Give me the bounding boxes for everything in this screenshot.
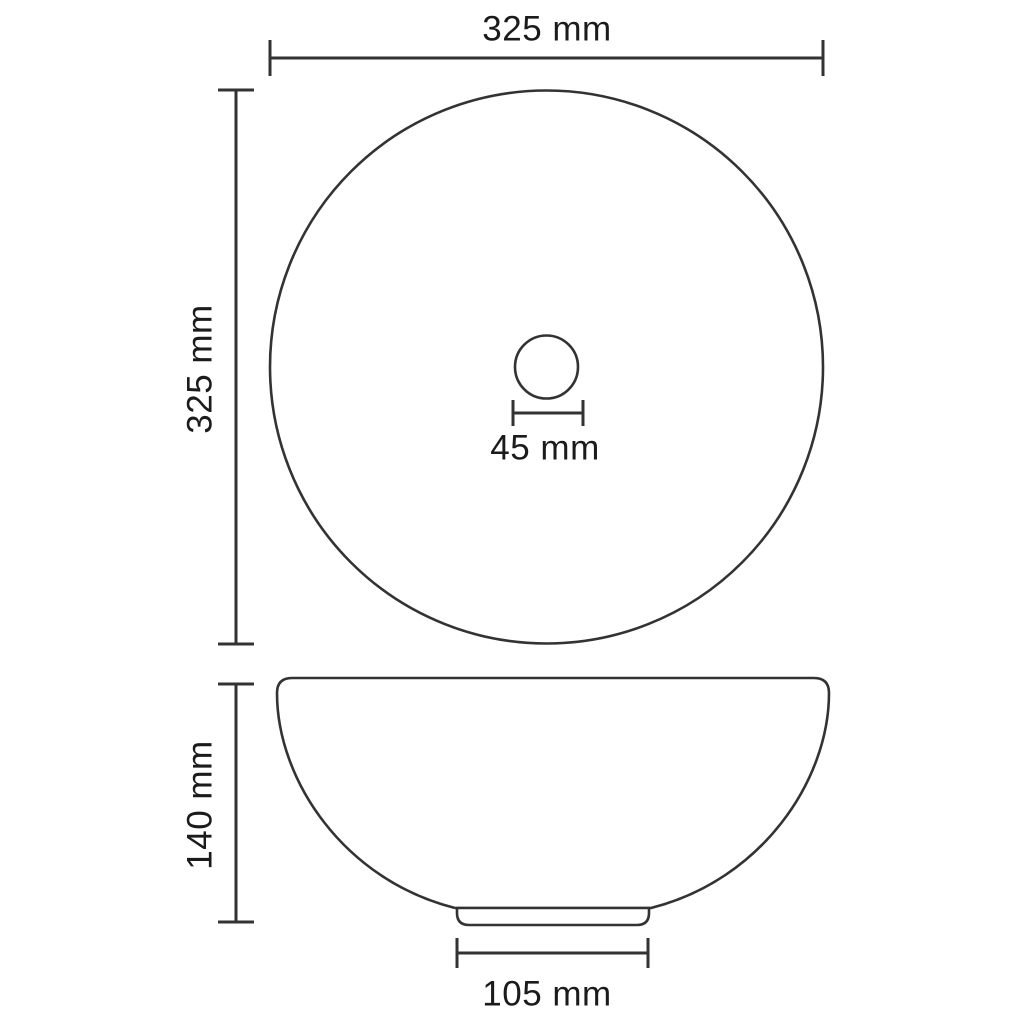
dim-left-height	[218, 90, 254, 644]
label-top-width: 325 mm	[482, 12, 611, 47]
dim-drain-diameter	[513, 400, 583, 426]
basin-rim-circle	[270, 91, 823, 644]
bowl-base-foot	[457, 908, 649, 925]
label-left-height: 325 mm	[183, 304, 218, 433]
label-side-height: 140 mm	[183, 740, 218, 869]
side-view	[277, 678, 829, 925]
dim-side-height	[218, 684, 254, 922]
label-drain-diameter: 45 mm	[490, 431, 599, 466]
drain-hole-circle	[515, 336, 578, 399]
bowl-profile-outline	[277, 678, 829, 908]
dim-base-width	[457, 938, 648, 968]
top-view	[270, 91, 823, 644]
dimension-drawing: 325 mm 325 mm 45 mm 140 mm 105 mm	[0, 0, 1024, 1024]
label-base-width: 105 mm	[482, 977, 611, 1012]
linework-layer	[0, 0, 1024, 1024]
